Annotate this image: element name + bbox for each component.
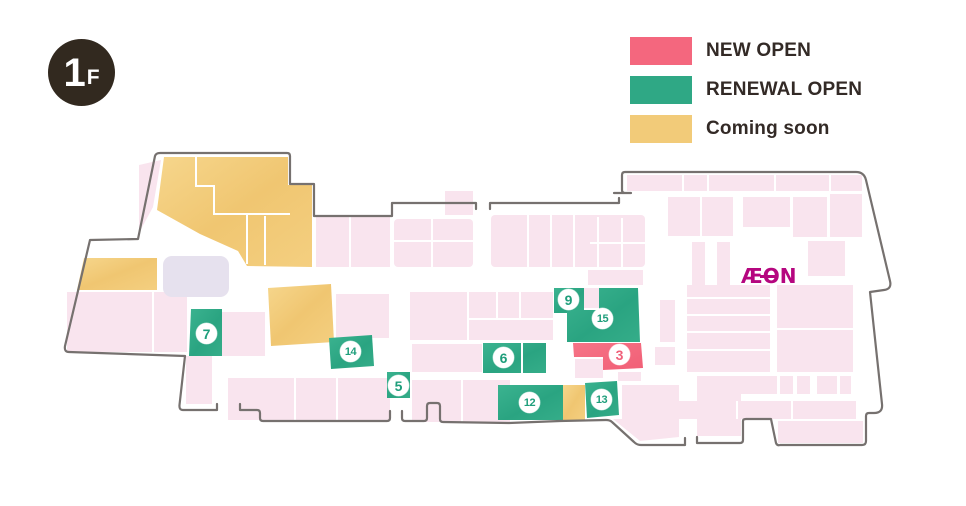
store-block xyxy=(817,376,837,394)
store-block xyxy=(412,344,482,372)
store-block xyxy=(336,294,389,338)
map-marker-7: 7 xyxy=(196,323,217,344)
store-block xyxy=(228,378,390,420)
coming-soon-area xyxy=(268,284,334,346)
store-block xyxy=(627,175,862,191)
outline-north-mid xyxy=(490,198,619,209)
store-block xyxy=(702,197,733,236)
store-block xyxy=(655,347,675,365)
map-marker-6: 6 xyxy=(493,347,514,368)
store-block xyxy=(67,292,187,352)
store-block xyxy=(316,217,390,267)
map-marker-9: 9 xyxy=(558,289,579,310)
store-block xyxy=(186,356,212,404)
map-marker-3: 3 xyxy=(609,344,630,365)
floor-badge-suffix: F xyxy=(87,67,100,88)
store-block xyxy=(697,376,777,394)
map-marker-5: 5 xyxy=(388,375,409,396)
legend-item-coming-soon: Coming soon xyxy=(630,115,930,143)
store-block xyxy=(668,197,700,236)
coming-soon-area xyxy=(563,385,585,420)
legend: NEW OPEN RENEWAL OPEN Coming soon xyxy=(630,37,930,154)
store-block xyxy=(575,359,603,378)
aeon-logo: ÆON xyxy=(741,264,796,288)
map-marker-14: 14 xyxy=(340,341,361,362)
store-block xyxy=(808,241,845,276)
aeon-logo-bar xyxy=(760,275,778,278)
store-block xyxy=(584,288,600,308)
store-block xyxy=(793,197,827,237)
store-block xyxy=(410,292,553,340)
store-block xyxy=(222,312,265,356)
legend-label-new-open: NEW OPEN xyxy=(706,40,811,62)
floor-map-page: 1 F NEW OPEN RENEWAL OPEN Coming soon ÆO… xyxy=(0,0,966,506)
map-marker-15: 15 xyxy=(592,308,613,329)
legend-label-renewal-open: RENEWAL OPEN xyxy=(706,79,862,101)
legend-item-renewal-open: RENEWAL OPEN xyxy=(630,76,930,104)
map-marker-12: 12 xyxy=(519,392,540,413)
store-block xyxy=(660,300,675,342)
store-block xyxy=(588,270,643,285)
store-block xyxy=(743,197,790,227)
floor-badge-number: 1 xyxy=(63,53,85,93)
legend-swatch-renewal-open xyxy=(630,76,692,104)
store-block xyxy=(394,219,473,267)
legend-swatch-coming-soon xyxy=(630,115,692,143)
store-block xyxy=(840,376,851,394)
store-block xyxy=(648,401,856,419)
floor-badge: 1 F xyxy=(48,39,115,106)
store-block xyxy=(797,376,810,394)
store-block xyxy=(780,376,793,394)
legend-swatch-new-open xyxy=(630,37,692,65)
store-block xyxy=(618,372,641,381)
open-space-block xyxy=(163,256,229,297)
coming-soon-area xyxy=(157,157,312,267)
store-block xyxy=(830,194,862,237)
legend-item-new-open: NEW OPEN xyxy=(630,37,930,65)
map-marker-13: 13 xyxy=(591,389,612,410)
store-block xyxy=(778,421,863,443)
coming-soon-area xyxy=(77,258,157,290)
legend-label-coming-soon: Coming soon xyxy=(706,118,830,140)
